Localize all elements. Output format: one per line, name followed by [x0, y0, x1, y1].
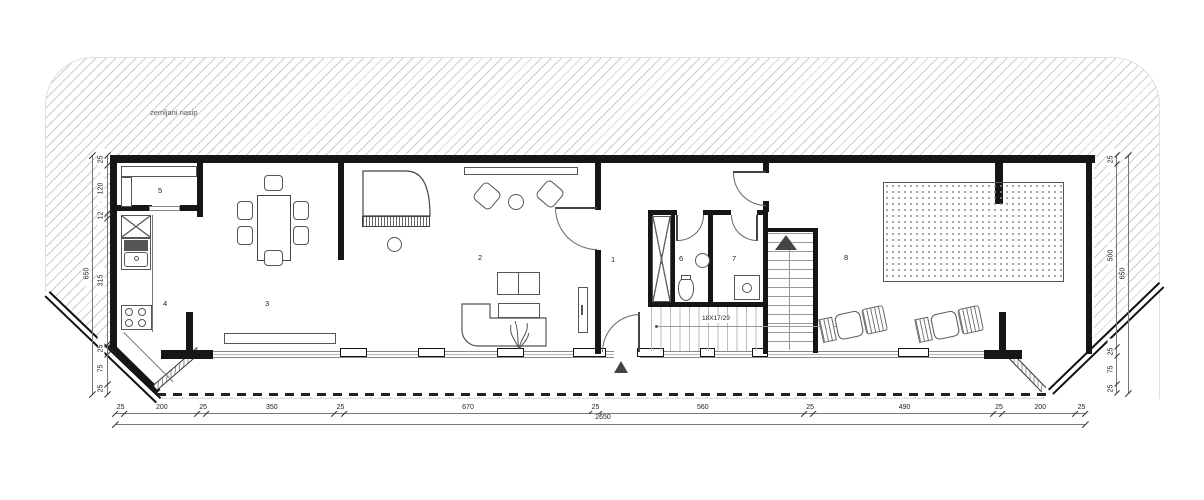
dim-total-right: 650 — [1120, 261, 1127, 287]
lounger-1-back — [861, 305, 888, 335]
living-sideboard — [464, 167, 578, 175]
room-label-8: 8 — [844, 254, 848, 262]
wall-living-hall-top — [595, 163, 601, 210]
lounger-2-back — [957, 305, 984, 335]
dim-label: 25 — [190, 404, 216, 411]
dim-label: 200 — [1027, 404, 1053, 411]
pantry-shelf-left — [121, 177, 132, 207]
wall-stub-left-v — [186, 312, 193, 352]
dim-line-5 — [1128, 155, 1129, 393]
berm-label: zemljani nasip — [150, 108, 198, 117]
dim-label: 315 — [98, 268, 105, 294]
cabinet-handle — [581, 305, 583, 315]
dining-chair-right-2 — [293, 226, 309, 245]
kitchen-sink-drainer — [124, 240, 148, 251]
wall-right — [1086, 155, 1092, 354]
stove-burner-2 — [138, 308, 146, 316]
stair-treads — [768, 233, 813, 350]
dim-label: 25 — [98, 376, 105, 402]
stove-burner-3 — [125, 319, 133, 327]
dining-chair-left-1 — [237, 201, 253, 220]
piano-stool — [387, 237, 402, 252]
dim-label: 670 — [455, 404, 481, 411]
plant — [505, 315, 533, 351]
loveseat — [497, 272, 540, 295]
dim-label: 350 — [259, 404, 285, 411]
pantry-sliding-door — [149, 206, 180, 211]
dim-label: 25 — [1108, 375, 1115, 401]
room-label-2: 2 — [478, 254, 482, 262]
room-label-7: 7 — [732, 255, 736, 263]
stove-burner-1 — [125, 308, 133, 316]
entrance-arrow — [614, 361, 628, 373]
stair-label: 18X17/29 — [700, 316, 732, 323]
toilet — [678, 277, 694, 301]
dim-label: 120 — [98, 176, 105, 202]
entrance-steps — [651, 307, 763, 351]
wall-room5-bottom-b — [180, 205, 203, 211]
wall-living-hall-bottom — [595, 250, 601, 354]
dim-total-bottom: 2650 — [582, 414, 624, 421]
dim-label: 25 — [108, 404, 134, 411]
dim-label: 25 — [328, 404, 354, 411]
room-label-4: 4 — [163, 300, 167, 308]
dim-line-1 — [115, 424, 1085, 425]
piano-keyboard — [362, 216, 430, 227]
pantry-shelf-top — [121, 166, 197, 177]
lounger-2-seat — [930, 310, 961, 341]
kitchen-tall-unit — [121, 215, 151, 238]
dim-label: 12 — [98, 202, 105, 228]
living-cabinet — [578, 287, 588, 333]
terrace-dotted-area — [883, 182, 1064, 282]
wall-stair-top — [763, 228, 818, 232]
wall-stub-right-cap — [984, 350, 1022, 359]
window-pier-1 — [418, 348, 445, 357]
dining-bench — [224, 333, 336, 344]
wall-stub-left-cap — [161, 350, 213, 359]
room-label-3: 3 — [265, 300, 269, 308]
kitchen-sink-drain — [134, 256, 139, 261]
hall-wardrobe — [652, 216, 671, 302]
side-table-round — [508, 194, 524, 210]
wall-wardrobe-right — [671, 215, 675, 302]
window-pier-0 — [340, 348, 367, 357]
dim-label: 25 — [98, 147, 105, 173]
dim-label: 25 — [1069, 404, 1095, 411]
window-pier-7 — [898, 348, 929, 357]
dim-label: 490 — [892, 404, 918, 411]
room-label-1: 1 — [611, 256, 615, 264]
stair-center-line — [789, 248, 790, 350]
stove-burner-4 — [138, 319, 146, 327]
dining-chair-bottom — [264, 250, 283, 266]
dim-total-left: 650 — [84, 261, 91, 287]
dim-label: 500 — [1108, 242, 1115, 268]
toilet-cistern — [681, 275, 691, 280]
room-label-6: 6 — [679, 255, 683, 263]
dim-label: 25 — [583, 404, 609, 411]
dim-line-2 — [107, 155, 108, 394]
dining-chair-top — [264, 175, 283, 191]
shower-drain — [742, 283, 752, 293]
wall-stair-right — [813, 230, 818, 353]
wall-stub-right-v — [999, 312, 1006, 352]
wall-dining-living — [338, 163, 344, 260]
dim-label: 560 — [690, 404, 716, 411]
dim-label: 25 — [1108, 146, 1115, 172]
kitchen-counter-edge — [152, 215, 153, 332]
floor-plan-canvas: zemljani nasip — [0, 0, 1204, 500]
grand-piano — [362, 169, 432, 218]
dim-line-3 — [92, 155, 93, 394]
washbasin — [695, 253, 710, 268]
dim-label: 200 — [149, 404, 175, 411]
wall-left — [110, 155, 117, 348]
wall-top — [110, 155, 1095, 163]
dim-label: 25 — [986, 404, 1012, 411]
room-label-5: 5 — [158, 187, 162, 195]
dim-label: 25 — [797, 404, 823, 411]
dining-chair-right-1 — [293, 201, 309, 220]
forecourt-dashed-line — [157, 393, 1048, 396]
lounger-1-seat — [834, 310, 865, 341]
stair-direction-arrow — [775, 235, 797, 250]
dining-chair-left-2 — [237, 226, 253, 245]
